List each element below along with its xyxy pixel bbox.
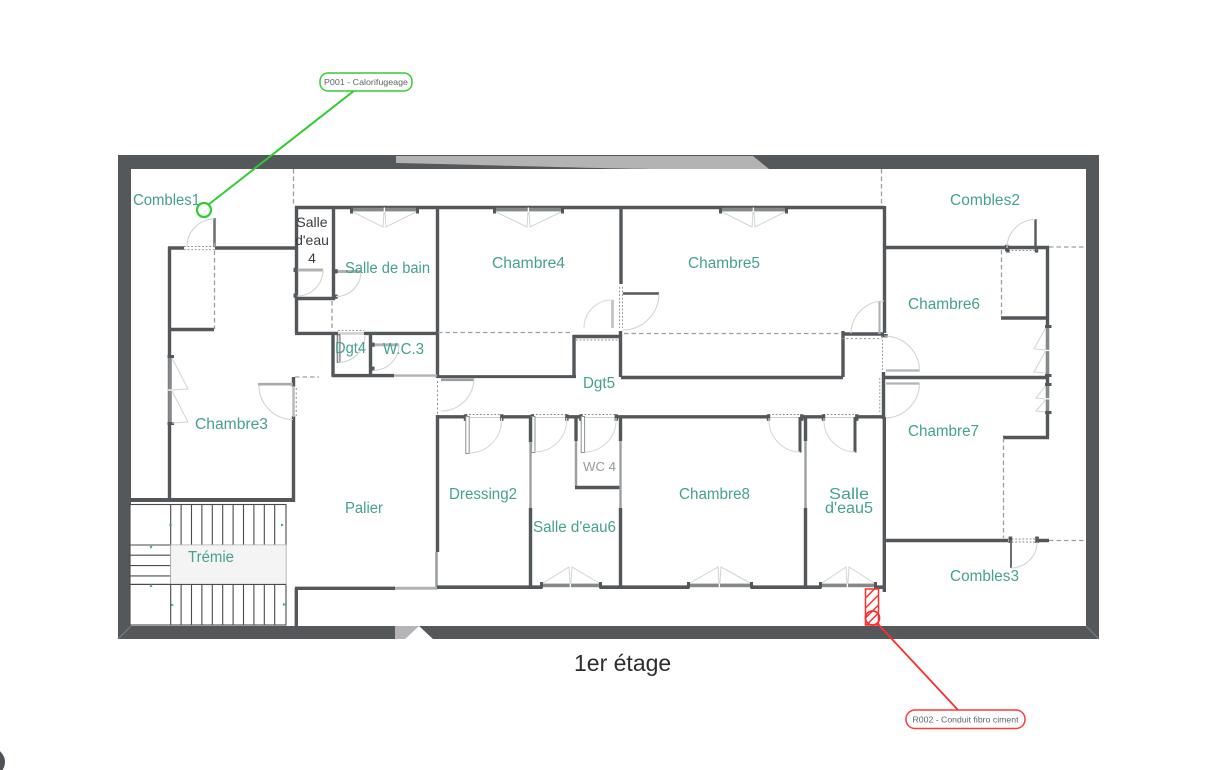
svg-text:Chambre3: Chambre3 xyxy=(195,416,268,433)
svg-text:P001 - Calorifugeage: P001 - Calorifugeage xyxy=(324,77,408,87)
svg-text:Chambre8: Chambre8 xyxy=(679,486,750,503)
svg-text:Combles3: Combles3 xyxy=(950,568,1019,585)
svg-text:d'eau: d'eau xyxy=(295,232,329,248)
svg-text:d'eau5: d'eau5 xyxy=(825,500,873,517)
svg-text:R002 - Conduit fibro ciment: R002 - Conduit fibro ciment xyxy=(913,715,1020,725)
svg-text:Combles2: Combles2 xyxy=(950,192,1020,209)
svg-text:Palier: Palier xyxy=(345,500,383,517)
svg-text:Salle de bain: Salle de bain xyxy=(345,260,430,277)
svg-text:Chambre7: Chambre7 xyxy=(908,423,979,440)
svg-text:WC 4: WC 4 xyxy=(583,459,616,474)
svg-text:Chambre6: Chambre6 xyxy=(908,296,980,313)
svg-text:Salle d'eau6: Salle d'eau6 xyxy=(533,519,616,536)
svg-text:Chambre5: Chambre5 xyxy=(688,255,760,272)
svg-text:1er étage: 1er étage xyxy=(574,650,671,676)
svg-text:Dgt4: Dgt4 xyxy=(335,340,366,357)
svg-text:Dgt5: Dgt5 xyxy=(583,375,615,392)
svg-text:Dressing2: Dressing2 xyxy=(449,486,517,503)
svg-text:Trémie: Trémie xyxy=(188,549,234,566)
svg-text:Salle: Salle xyxy=(296,214,327,230)
svg-text:Chambre4: Chambre4 xyxy=(492,255,565,272)
svg-text:4: 4 xyxy=(308,250,316,266)
svg-text:Combles1: Combles1 xyxy=(133,192,200,209)
svg-text:W.C.3: W.C.3 xyxy=(383,341,424,358)
